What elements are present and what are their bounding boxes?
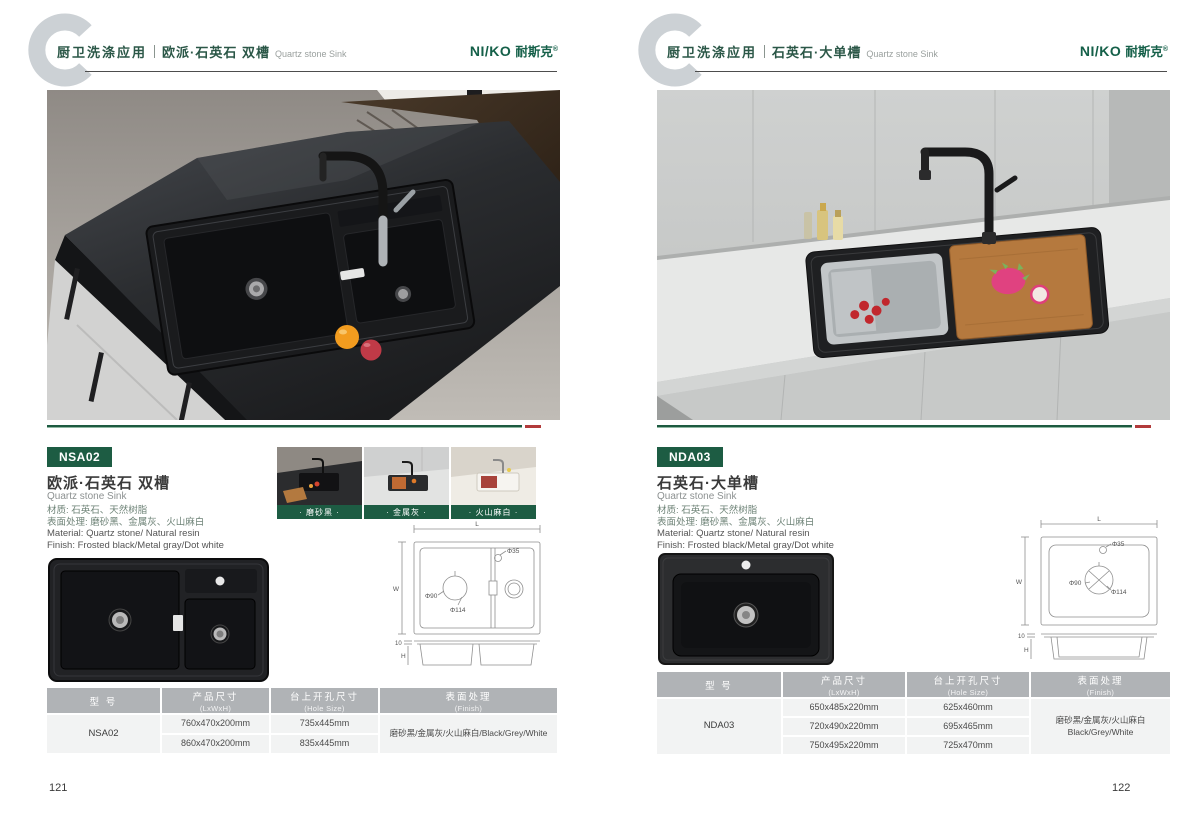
swatch-frosted-black: · 磨砂黑 · — [277, 447, 362, 519]
cell-size-2: 860x470x200mm — [162, 735, 269, 753]
catalog-spread: 厨卫洗涤应用 欧派·石英石 双槽 Quartz stone Sink NI/KO… — [0, 0, 1200, 820]
col-header-finish-cn: 表面处理 — [1077, 673, 1123, 687]
dim-l: L — [1097, 516, 1101, 523]
single-sink-topview — [657, 552, 835, 666]
technical-drawing-single: L W Φ35 Φ90 Φ114 10 H — [1015, 513, 1165, 663]
col-header-finish: 表面处理(Finish) — [1031, 672, 1170, 697]
brand-cn: 耐斯克® — [515, 41, 558, 60]
drawing-lines — [398, 525, 540, 665]
section-divider-green — [47, 425, 522, 428]
col-header-model-cn: 型 号 — [705, 678, 733, 692]
swatch-metal-gray: · 金属灰 · — [364, 447, 449, 519]
page-121: 厨卫洗涤应用 欧派·石英石 双槽 Quartz stone Sink NI/KO… — [47, 0, 560, 820]
cell-size-3: 750x495x220mm — [783, 737, 905, 754]
header-category: 厨卫洗涤应用 — [667, 42, 757, 61]
col-header-finish-en: (Finish) — [1087, 688, 1114, 697]
dim-w: W — [393, 586, 400, 593]
dim-d35: Φ35 — [1112, 541, 1125, 548]
swatch-dot-white: · 火山麻白 · — [451, 447, 536, 519]
header-product: 欧派·石英石 双槽 — [162, 42, 270, 61]
col-header-size-cn: 产品尺寸 — [821, 673, 867, 687]
swatch-label: · 火山麻白 · — [451, 505, 536, 519]
dim-10: 10 — [1018, 634, 1025, 640]
finish-swatches: · 磨砂黑 · · 金属灰 · — [277, 447, 536, 519]
product-title-en: Quartz stone Sink — [657, 491, 736, 502]
header-divider — [764, 45, 765, 58]
header-rule — [695, 71, 1167, 72]
page-header: 厨卫洗涤应用 石英石·大单槽 Quartz stone Sink — [667, 42, 938, 61]
dim-10: 10 — [395, 641, 402, 647]
dim-d90: Φ90 — [1069, 580, 1082, 587]
brand-logo: NI/KO 耐斯克® — [1080, 41, 1168, 60]
header-divider — [154, 45, 155, 58]
header-product-en: Quartz stone Sink — [275, 49, 347, 59]
main-photo-single-sink — [657, 90, 1170, 420]
swatch-image-gray — [364, 447, 449, 505]
swatch-label: · 金属灰 · — [364, 505, 449, 519]
section-divider-red — [525, 425, 541, 428]
registered-mark: ® — [1163, 46, 1168, 53]
col-header-hole-cn: 台上开孔尺寸 — [933, 673, 1002, 687]
technical-drawing-double: L W Φ35 Φ90 Φ114 10 H — [392, 518, 557, 668]
swatch-label: · 磨砂黑 · — [277, 505, 362, 519]
spec-material-cn: 材质: 石英石、天然树脂 — [47, 505, 224, 517]
col-header-hole: 台上开孔尺寸(Hole Size) — [907, 672, 1029, 697]
cell-size-1: 760x470x200mm — [162, 715, 269, 733]
col-header-hole-en: (Hole Size) — [948, 688, 988, 697]
swatch-image-black — [277, 447, 362, 505]
col-header-finish-cn: 表面处理 — [445, 689, 491, 703]
drawing-lines — [1021, 520, 1157, 659]
header-rule — [85, 71, 557, 72]
cell-size-1: 650x485x220mm — [783, 699, 905, 716]
cell-size-2: 720x490x220mm — [783, 718, 905, 735]
dim-l: L — [475, 521, 479, 528]
cell-hole-1: 735x445mm — [271, 715, 378, 733]
col-header-size-en: (LxWxH) — [200, 704, 231, 713]
page-number: 121 — [49, 782, 67, 794]
spec-finish-en: Finish: Frosted black/Metal gray/Dot whi… — [47, 540, 224, 552]
dim-h: H — [401, 653, 406, 660]
product-specs: 材质: 石英石、天然树脂 表面处理: 磨砂黑、金属灰、火山麻白 Material… — [657, 505, 834, 551]
spec-finish-cn: 表面处理: 磨砂黑、金属灰、火山麻白 — [47, 517, 224, 529]
product-title: 欧派·石英石 双槽 — [47, 472, 170, 493]
col-header-hole-cn: 台上开孔尺寸 — [290, 689, 359, 703]
product-specs: 材质: 石英石、天然树脂 表面处理: 磨砂黑、金属灰、火山麻白 Material… — [47, 505, 224, 551]
cell-model: NSA02 — [47, 715, 160, 753]
dim-w: W — [1016, 579, 1023, 586]
swatch-image-white — [451, 447, 536, 505]
cell-finish-en: Black/Grey/White — [1068, 727, 1134, 738]
model-badge: NDA03 — [657, 447, 723, 467]
kitchen-scene-illustration — [47, 90, 560, 420]
kitchen-scene-illustration — [657, 90, 1170, 420]
cell-finish-cn: 磨砂黑/金属灰/火山麻白 — [1056, 715, 1146, 726]
dim-d114: Φ114 — [450, 607, 466, 614]
dim-d114: Φ114 — [1111, 589, 1127, 596]
cell-finish: 磨砂黑/金属灰/火山麻白/Black/Grey/White — [380, 715, 557, 753]
brand-cn: 耐斯克® — [1125, 41, 1168, 60]
spec-finish-cn: 表面处理: 磨砂黑、金属灰、火山麻白 — [657, 517, 834, 529]
spec-table: 型 号 产品尺寸(LxWxH) 台上开孔尺寸(Hole Size) 表面处理(F… — [47, 688, 557, 753]
cell-model: NDA03 — [657, 699, 781, 754]
col-header-finish-en: (Finish) — [455, 704, 482, 713]
product-title-en: Quartz stone Sink — [47, 491, 126, 502]
spec-material-en: Material: Quartz stone/ Natural resin — [657, 528, 834, 540]
col-header-size: 产品尺寸(LxWxH) — [783, 672, 905, 697]
col-header-model: 型 号 — [657, 672, 781, 697]
product-photo-single-sink — [657, 552, 835, 671]
dim-d90: Φ90 — [425, 593, 438, 600]
spec-table: 型 号 产品尺寸(LxWxH) 台上开孔尺寸(Hole Size) 表面处理(F… — [657, 672, 1170, 754]
header-product: 石英石·大单槽 — [772, 42, 861, 61]
brand-latin: NI/KO — [1080, 43, 1121, 59]
header-product-en: Quartz stone Sink — [866, 49, 938, 59]
page-number: 122 — [1112, 782, 1130, 794]
main-photo-double-sink — [47, 90, 560, 420]
col-header-size: 产品尺寸(LxWxH) — [162, 688, 269, 713]
cell-hole-1: 625x460mm — [907, 699, 1029, 716]
header-category: 厨卫洗涤应用 — [57, 42, 147, 61]
spec-material-cn: 材质: 石英石、天然树脂 — [657, 505, 834, 517]
col-header-hole-en: (Hole Size) — [304, 704, 344, 713]
model-badge: NSA02 — [47, 447, 112, 467]
dim-h: H — [1024, 647, 1029, 654]
col-header-size-cn: 产品尺寸 — [192, 689, 238, 703]
spec-finish-en: Finish: Frosted black/Metal gray/Dot whi… — [657, 540, 834, 552]
col-header-hole: 台上开孔尺寸(Hole Size) — [271, 688, 378, 713]
double-sink-topview — [47, 557, 270, 683]
cell-hole-3: 725x470mm — [907, 737, 1029, 754]
registered-mark: ® — [553, 46, 558, 53]
product-photo-double-sink — [47, 557, 270, 688]
col-header-model: 型 号 — [47, 688, 160, 713]
section-divider-green — [657, 425, 1132, 428]
spec-material-en: Material: Quartz stone/ Natural resin — [47, 528, 224, 540]
product-title: 石英石·大单槽 — [657, 472, 759, 493]
brand-latin: NI/KO — [470, 43, 511, 59]
page-122: 厨卫洗涤应用 石英石·大单槽 Quartz stone Sink NI/KO 耐… — [657, 0, 1170, 820]
page-header: 厨卫洗涤应用 欧派·石英石 双槽 Quartz stone Sink — [57, 42, 347, 61]
cell-hole-2: 835x445mm — [271, 735, 378, 753]
cell-hole-2: 695x465mm — [907, 718, 1029, 735]
section-divider-red — [1135, 425, 1151, 428]
col-header-finish: 表面处理(Finish) — [380, 688, 557, 713]
col-header-model-cn: 型 号 — [90, 694, 118, 708]
cell-finish: 磨砂黑/金属灰/火山麻白 Black/Grey/White — [1031, 699, 1170, 754]
col-header-size-en: (LxWxH) — [828, 688, 859, 697]
brand-logo: NI/KO 耐斯克® — [470, 41, 558, 60]
dim-d35: Φ35 — [507, 548, 520, 555]
